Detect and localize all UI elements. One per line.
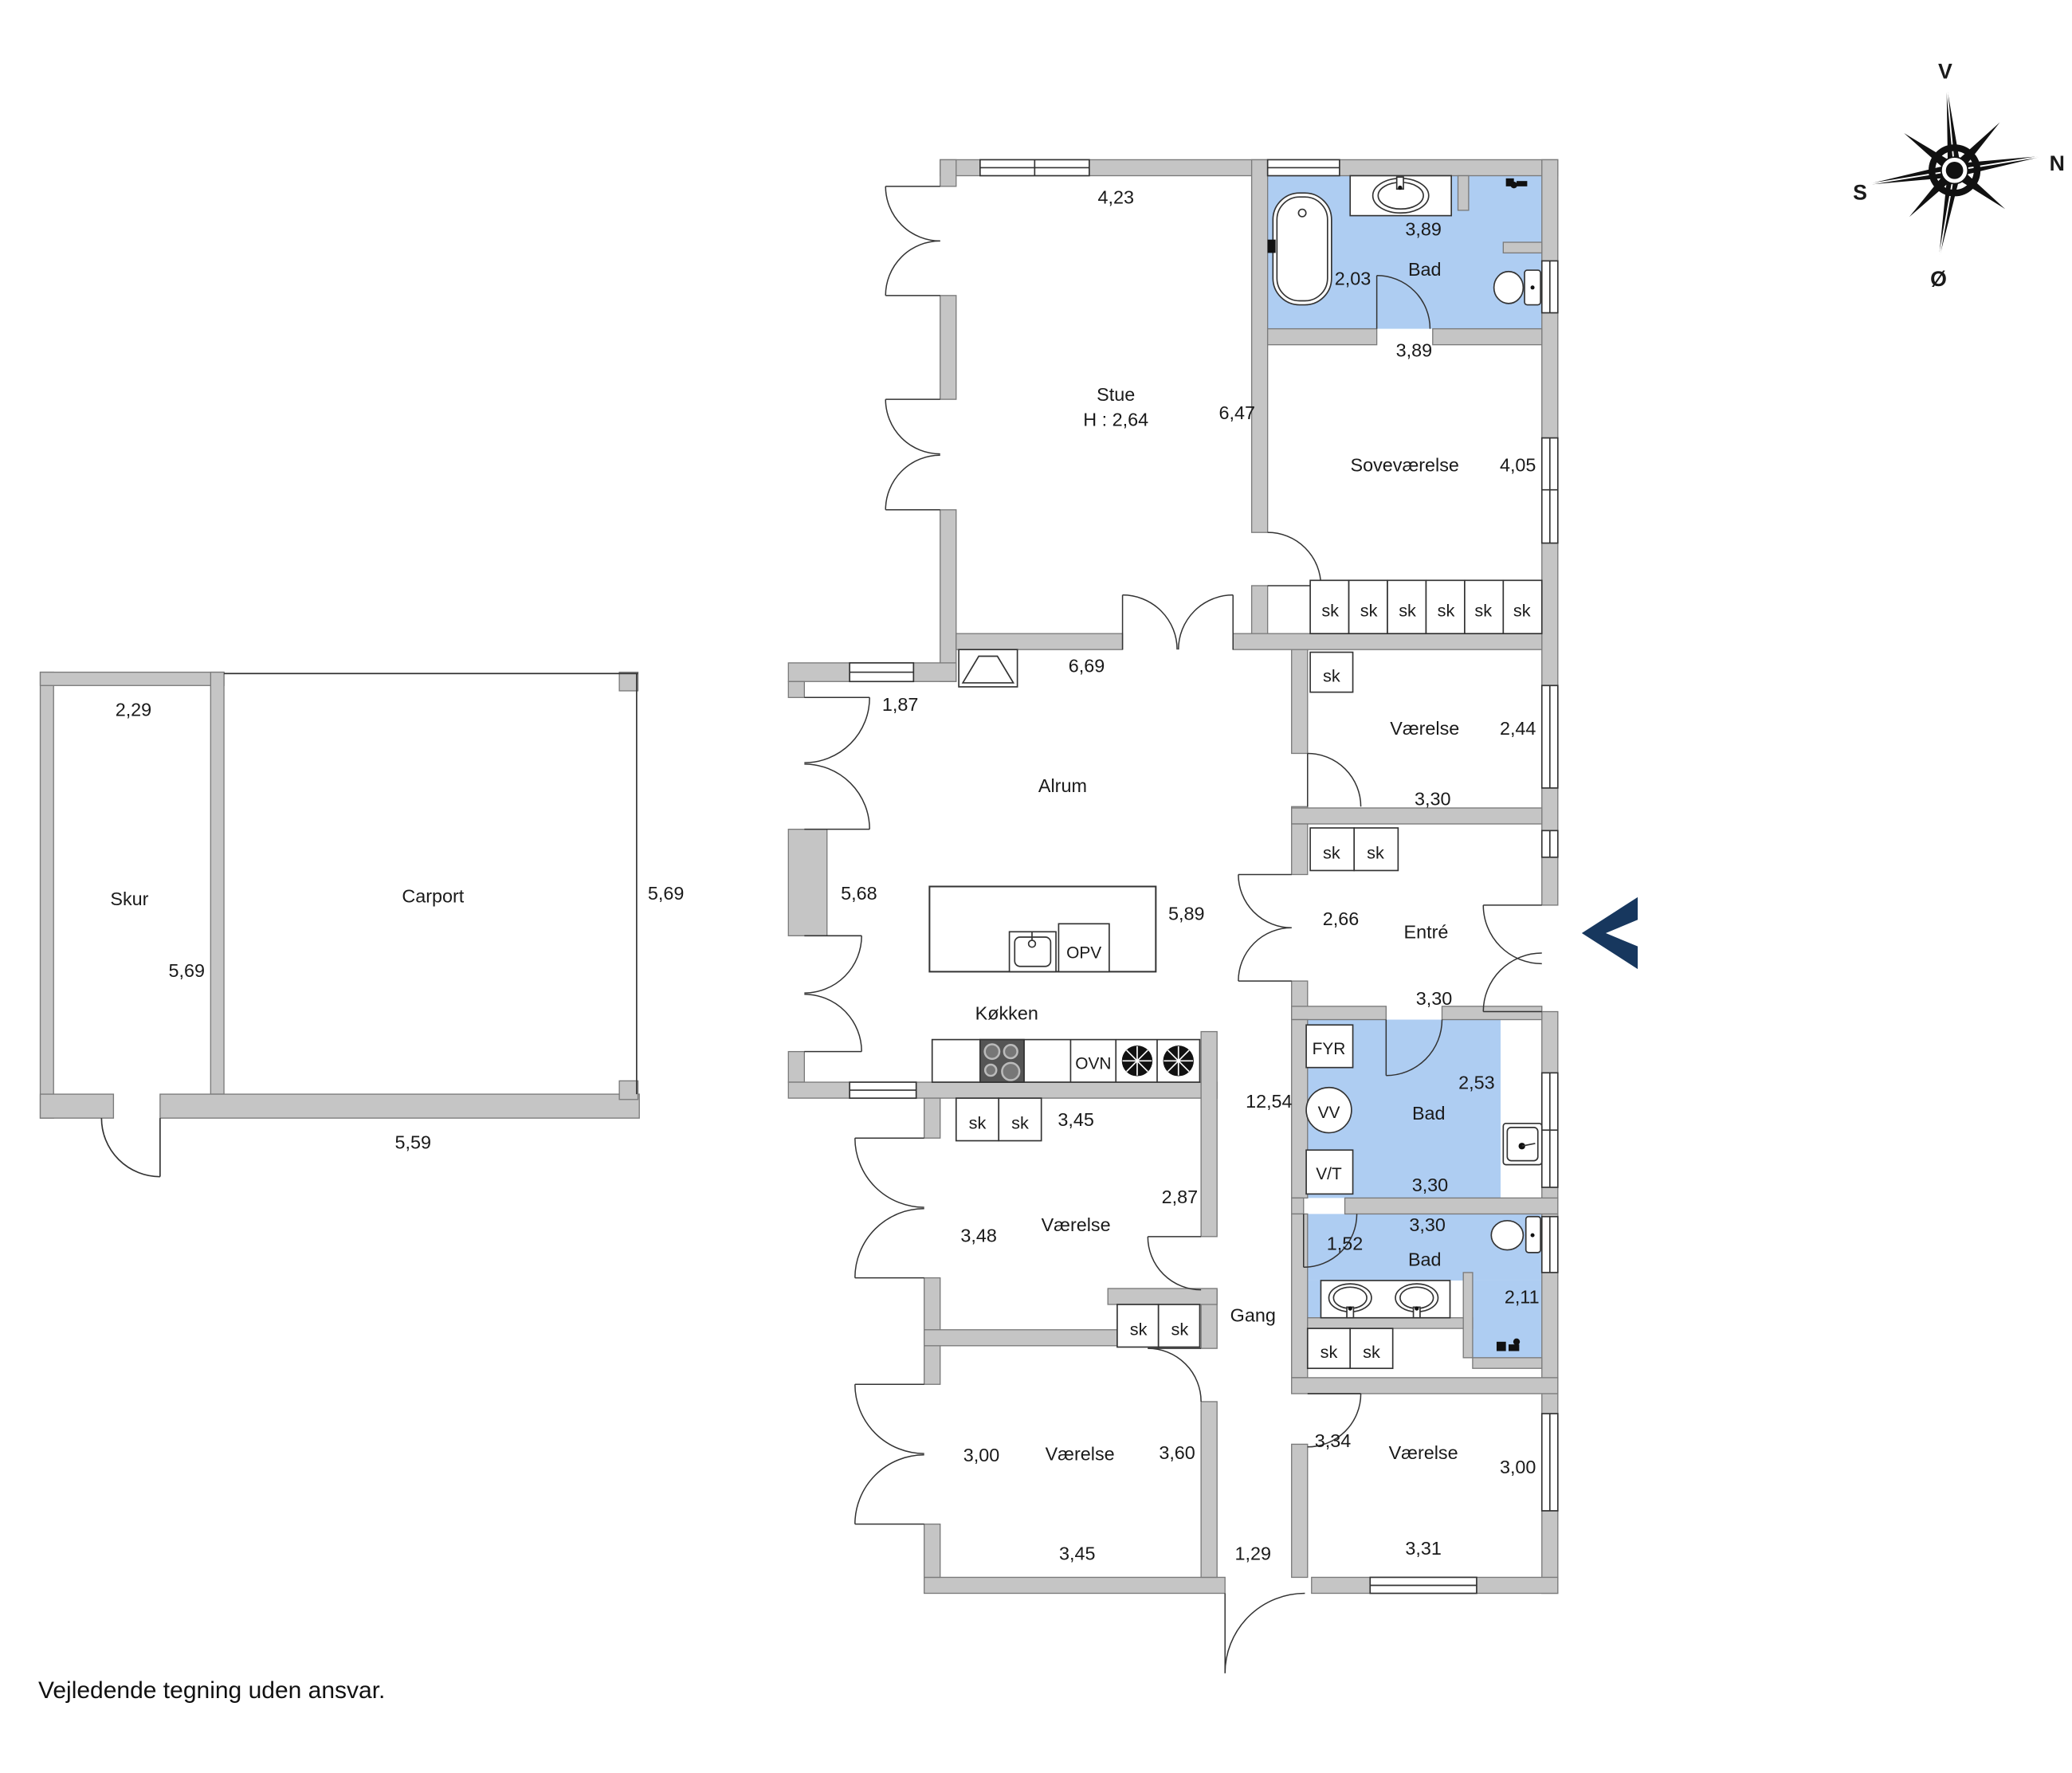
- room-label-stue-height: H : 2,64: [1083, 410, 1148, 430]
- dim-alrum-top: 6,69: [1069, 656, 1105, 677]
- fan-symbol-1: [1122, 1045, 1152, 1076]
- dim-bad3-width: 3,30: [1409, 1214, 1446, 1235]
- dim-vaerelse-bl-width: 3,45: [1059, 1544, 1096, 1564]
- dim-sovevaerelse-width: 3,89: [1396, 340, 1433, 361]
- dim-bad1-depth: 2,03: [1335, 268, 1372, 288]
- compass-s: S: [1853, 181, 1867, 205]
- french-door-stue-2: [885, 399, 940, 510]
- window-stue-top: [980, 159, 1089, 175]
- dim-bad1-width: 3,89: [1405, 219, 1442, 240]
- dim-gang-length: 12,54: [1246, 1091, 1293, 1112]
- door-vaerelse287-gang: [1148, 1237, 1201, 1290]
- closet-label-8: sk: [1323, 842, 1340, 862]
- fan-symbol-2: [1164, 1045, 1194, 1076]
- entrance-arrow-icon: [1582, 897, 1638, 969]
- room-label-carport: Carport: [402, 886, 464, 907]
- room-label-bad-top: Bad: [1408, 259, 1442, 280]
- window-entre-small: [1542, 830, 1558, 857]
- window-bad-lower: [1542, 1217, 1558, 1273]
- kitchen-fixtures: [929, 887, 1199, 1083]
- closet-label-7: sk: [1323, 665, 1340, 685]
- window-wc-top: [1542, 261, 1558, 312]
- room-label-sovevaerelse: Soveværelse: [1350, 454, 1458, 475]
- room-label-bad-lower: Bad: [1408, 1249, 1442, 1270]
- dim-gang-width: 1,29: [1235, 1544, 1272, 1564]
- dim-carport-width: 5,59: [394, 1132, 431, 1153]
- shower: [1503, 1124, 1541, 1165]
- window-koekken-step: [850, 1082, 916, 1098]
- room-label-alrum: Alrum: [1038, 775, 1087, 796]
- room-label-skur: Skur: [110, 888, 148, 909]
- compass-rose-icon: [1864, 85, 2045, 261]
- closet-label-13: sk: [1171, 1319, 1189, 1339]
- vanity-double-sink: [1321, 1281, 1450, 1318]
- dim-vaerelse287-left: 3,48: [960, 1226, 997, 1246]
- dim-vaerelse-bl-right: 3,60: [1159, 1442, 1195, 1463]
- french-door-vaerelse287: [855, 1138, 924, 1277]
- carport-post-topright: [619, 673, 638, 691]
- compass-v: V: [1938, 60, 1952, 84]
- double-door-entre-west: [1238, 874, 1292, 981]
- door-vaerelse-244: [1308, 753, 1361, 806]
- closet-label-15: sk: [1363, 1342, 1380, 1362]
- fixture-fyr-label: FYR: [1313, 1040, 1346, 1058]
- bad-lower-floor-c: [1308, 1281, 1321, 1318]
- window-bottom-vaerelse: [1370, 1577, 1477, 1593]
- dim-alrum-depth: 5,68: [841, 883, 877, 904]
- dim-stue-width: 4,23: [1097, 187, 1134, 208]
- disclaimer-text: Vejledende tegning uden ansvar.: [38, 1677, 385, 1704]
- closet-label-6: sk: [1513, 600, 1531, 620]
- room-label-bad-mid: Bad: [1412, 1103, 1446, 1124]
- bathtub: [1268, 193, 1332, 304]
- dim-vaerelse244-depth: 2,44: [1500, 718, 1536, 739]
- window-vaerelse-244: [1542, 685, 1558, 788]
- dim-vaerelse-bl-left: 3,00: [963, 1445, 1000, 1465]
- window-alrum-step: [850, 663, 913, 681]
- dim-skur-depth: 5,69: [169, 960, 206, 981]
- french-door-stue-1: [885, 186, 940, 296]
- dim-entre-width: 3,30: [1416, 988, 1453, 1009]
- skur-wall-right: [210, 673, 224, 1095]
- window-sovevaerelse: [1542, 438, 1558, 543]
- dim-vaerelse-br-width: 3,31: [1405, 1538, 1442, 1559]
- island-sink: [1010, 932, 1056, 971]
- dim-koekken-width: 3,45: [1058, 1109, 1094, 1130]
- room-label-vaerelse-br: Værelse: [1389, 1442, 1458, 1463]
- stove-cooktop: [980, 1040, 1024, 1082]
- dim-carport-depth: 5,69: [648, 883, 685, 904]
- dim-vaerelse244-width: 3,30: [1415, 789, 1451, 810]
- skur-wall-top: [41, 673, 225, 686]
- room-label-entre: Entré: [1403, 922, 1448, 943]
- compass-o: Ø: [1930, 267, 1947, 291]
- room-label-gang: Gang: [1230, 1305, 1276, 1326]
- door-sovevaerelse: [1268, 532, 1321, 586]
- carport-outline: [224, 673, 638, 1094]
- toilet-top: [1494, 270, 1540, 304]
- dim-alrum-step: 1,87: [882, 694, 919, 715]
- dim-bad3-nook: 2,11: [1505, 1286, 1540, 1307]
- closet-label-12: sk: [1130, 1319, 1148, 1339]
- floor-plan: 2,29Skur5,69Carport5,695,594,233,89Bad2,…: [0, 0, 2072, 1769]
- carport-post-bottomright: [619, 1081, 638, 1099]
- dim-vaerelse-br-left: 3,34: [1315, 1430, 1352, 1451]
- closet-label-11: sk: [1011, 1113, 1029, 1133]
- room-label-stue: Stue: [1097, 384, 1135, 405]
- closet-label-3: sk: [1399, 600, 1416, 620]
- vanity-sink-top: [1350, 175, 1451, 215]
- fixture-opv-label: OPV: [1066, 944, 1101, 963]
- dim-bad3-left: 1,52: [1327, 1234, 1364, 1254]
- skur-wall-left: [41, 673, 54, 1119]
- dim-skur-width: 2,29: [116, 700, 152, 720]
- dim-sovevaerelse-depth: 4,05: [1500, 454, 1536, 475]
- door-gang-exit: [1225, 1594, 1305, 1673]
- fixture-vv-label: VV: [1318, 1104, 1340, 1122]
- french-door-vaerelse-bl: [855, 1384, 924, 1524]
- dim-vaerelse287-depth: 2,87: [1162, 1187, 1199, 1207]
- floor-plan-page: 2,29Skur5,69Carport5,695,594,233,89Bad2,…: [0, 0, 2072, 1769]
- window-bad-top: [1268, 159, 1340, 175]
- closet-label-9: sk: [1367, 842, 1384, 862]
- closet-label-14: sk: [1321, 1342, 1338, 1362]
- closet-label-5: sk: [1474, 600, 1492, 620]
- room-label-koekken: Køkken: [975, 1003, 1038, 1024]
- room-label-vaerelse-287: Værelse: [1042, 1214, 1111, 1235]
- bottom-wall-right: [160, 1094, 639, 1118]
- fireplace: [959, 649, 1017, 687]
- closet-label-10: sk: [969, 1113, 987, 1133]
- skur-door: [101, 1118, 159, 1176]
- door-vaerelse-bl-gang: [1148, 1348, 1201, 1402]
- dim-stue-depth: 6,47: [1218, 402, 1255, 423]
- entrance-double-door: [1483, 905, 1541, 1012]
- window-vaerelse-br: [1542, 1414, 1558, 1511]
- fixture-ovn-label: OVN: [1075, 1054, 1111, 1073]
- double-door-stue-alrum: [1123, 595, 1234, 649]
- dim-vaerelse-br-depth: 3,00: [1500, 1457, 1536, 1477]
- bottom-wall-left: [41, 1094, 114, 1118]
- dim-bad2-depth: 2,53: [1458, 1072, 1495, 1092]
- closet-label-1: sk: [1321, 600, 1339, 620]
- kitchen-counter: [932, 1040, 1200, 1082]
- french-door-alrum-1: [804, 697, 869, 829]
- room-label-vaerelse-bl: Værelse: [1046, 1443, 1115, 1464]
- dim-island: 5,89: [1168, 903, 1205, 924]
- window-bad-mid: [1542, 1073, 1558, 1187]
- walls: [788, 159, 1558, 1593]
- closet-label-2: sk: [1360, 600, 1378, 620]
- fixture-vt-label: V/T: [1316, 1165, 1342, 1183]
- compass-n: N: [2050, 151, 2065, 175]
- dim-bad2-width: 3,30: [1412, 1175, 1449, 1195]
- closet-label-4: sk: [1438, 600, 1455, 620]
- french-door-alrum-2: [804, 936, 861, 1051]
- dim-entre-left: 2,66: [1323, 908, 1360, 929]
- room-label-vaerelse-244: Værelse: [1390, 718, 1459, 739]
